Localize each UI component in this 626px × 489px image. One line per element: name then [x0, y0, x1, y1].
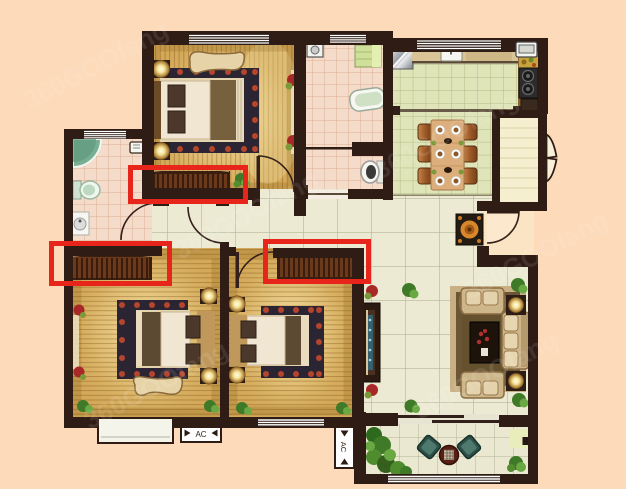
svg-text:AC: AC	[195, 430, 206, 439]
svg-text:AC: AC	[339, 442, 348, 453]
